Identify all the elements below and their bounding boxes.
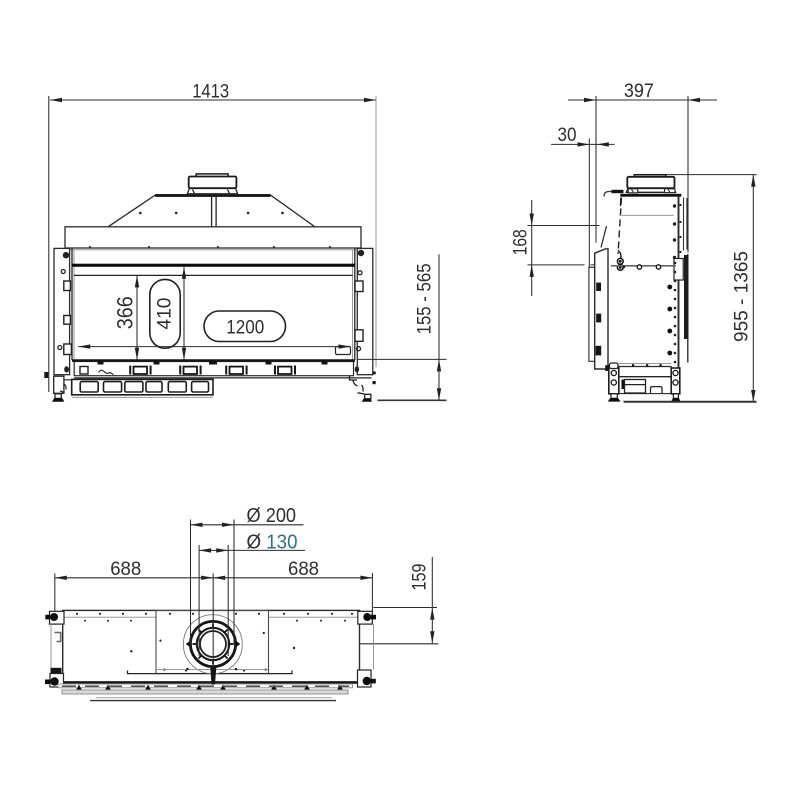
svg-text:688: 688 [110,558,141,580]
svg-text:397: 397 [624,80,654,102]
svg-text:1200: 1200 [226,317,264,339]
svg-text:688: 688 [288,558,319,580]
svg-text:1413: 1413 [192,81,229,103]
svg-text:155 - 565: 155 - 565 [413,263,435,334]
svg-text:168: 168 [510,229,532,255]
svg-text:30: 30 [558,124,577,146]
svg-text:366: 366 [112,296,137,329]
svg-text:Ø 200: Ø 200 [247,504,297,527]
svg-text:159: 159 [409,564,431,591]
svg-text:410: 410 [154,297,176,329]
svg-text:Ø 130: Ø 130 [247,531,298,554]
svg-text:955 - 1365: 955 - 1365 [731,251,753,342]
